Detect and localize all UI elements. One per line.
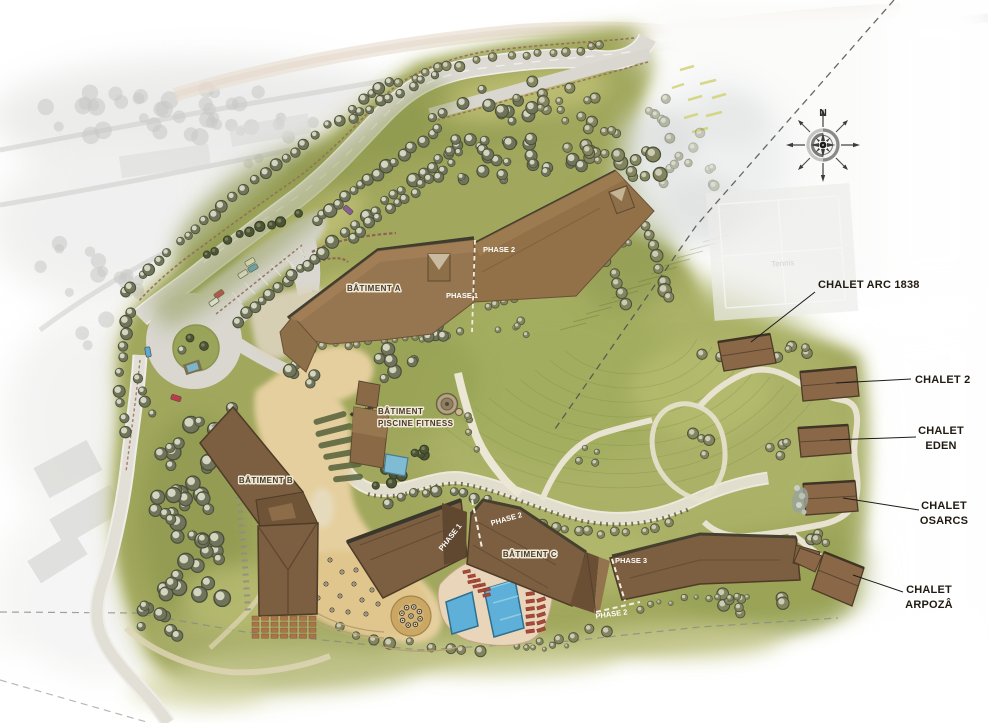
svg-text:CHALET: CHALET	[906, 584, 952, 596]
svg-text:CHALET: CHALET	[921, 500, 967, 512]
svg-text:CHALET: CHALET	[918, 425, 964, 437]
svg-text:CHALET ARC 1838: CHALET ARC 1838	[818, 279, 920, 291]
svg-text:PHASE 1: PHASE 1	[446, 291, 478, 300]
svg-text:CHALET 2: CHALET 2	[915, 374, 970, 386]
svg-text:OSARCS: OSARCS	[920, 515, 968, 527]
svg-text:BÂTIMENT C: BÂTIMENT C	[503, 550, 557, 559]
svg-text:PHASE 3: PHASE 3	[615, 556, 647, 565]
svg-text:BÂTIMENT: BÂTIMENT	[378, 407, 423, 416]
svg-text:N: N	[819, 107, 827, 119]
svg-text:BÂTIMENT B: BÂTIMENT B	[239, 476, 293, 485]
svg-text:PHASE 2: PHASE 2	[483, 245, 515, 254]
svg-text:EDEN: EDEN	[925, 440, 956, 452]
svg-text:Tennis: Tennis	[771, 258, 795, 269]
svg-text:BÂTIMENT A: BÂTIMENT A	[347, 284, 401, 293]
svg-text:PISCINE FITNESS: PISCINE FITNESS	[378, 419, 454, 428]
svg-text:ARPOZÂ: ARPOZÂ	[905, 598, 953, 611]
